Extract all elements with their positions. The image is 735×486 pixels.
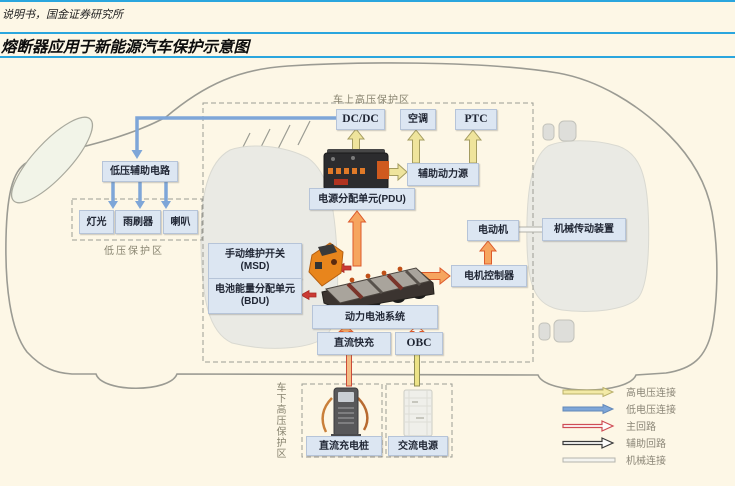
legend-label: 高电压连接 — [626, 384, 676, 399]
headrest-icon — [554, 320, 574, 342]
pdu-image — [324, 149, 389, 190]
top-rule — [0, 0, 735, 2]
label-hv-onboard-zone: 车上高压保护区 — [333, 91, 410, 106]
legend-row-low-voltage: 低电压连接 — [562, 400, 676, 417]
box-dc-fast: 直流快充 — [317, 332, 391, 355]
box-horn: 喇叭 — [163, 210, 198, 234]
box-dc-charger: 直流充电桩 — [306, 436, 382, 456]
legend-row-high-voltage: 高电压连接 — [562, 383, 676, 400]
title-rule-bottom — [0, 56, 735, 58]
headrest-icon — [539, 323, 550, 340]
legend-label: 低电压连接 — [626, 401, 676, 416]
msd-label-line1: 手动维护开关 — [225, 249, 285, 262]
legend-row-main-circuit: 主回路 — [562, 417, 676, 434]
box-ptc: PTC — [455, 109, 497, 130]
box-mechanical-drive: 机械传动装置 — [542, 218, 626, 241]
mechanical-link — [516, 227, 543, 232]
box-ac-source: 交流电源 — [388, 436, 448, 456]
box-lv-aux: 低压辅助电路 — [102, 161, 178, 182]
legend-row-mechanical: 机械连接 — [562, 451, 676, 468]
box-battery-system: 动力电池系统 — [312, 305, 438, 329]
source-note: 说明书，国金证券研究所 — [2, 6, 123, 22]
ac-source-image — [404, 390, 432, 436]
box-wiper: 雨刷器 — [115, 210, 161, 234]
legend-row-aux-circuit: 辅助回路 — [562, 434, 676, 451]
headrest-icon — [559, 121, 576, 141]
ac-charge-line — [415, 353, 420, 386]
dc-charge-line — [347, 353, 352, 386]
mechanical-link-icon — [562, 453, 616, 467]
headlight-shape — [1, 107, 104, 213]
msd-label-line2: (MSD) — [241, 261, 270, 274]
box-motor-controller: 电机控制器 — [451, 265, 527, 287]
aux-circuit-arrow-icon — [562, 436, 616, 450]
box-msd: 手动维护开关 (MSD) — [208, 243, 302, 279]
box-motor: 电动机 — [467, 220, 519, 241]
legend: 高电压连接 低电压连接 主回路 辅助回路 机械连接 — [562, 383, 676, 468]
legend-label: 机械连接 — [626, 452, 666, 467]
box-bdu: 电池能量分配单元 (BDU) — [208, 278, 302, 314]
bdu-label-line1: 电池能量分配单元 — [215, 284, 295, 297]
box-pdu: 电源分配单元(PDU) — [309, 188, 415, 210]
label-hv-under-zone: 车下高压保护区 — [274, 382, 285, 464]
box-air-conditioner: 空调 — [400, 109, 436, 130]
bdu-label-line2: (BDU) — [241, 296, 269, 309]
low-voltage-arrow-icon — [562, 402, 616, 416]
report-figure-page: 说明书，国金证券研究所 熔断器应用于新能源汽车保护示意图 — [0, 0, 735, 486]
main-circuit-arrow-icon — [562, 419, 616, 433]
legend-label: 辅助回路 — [626, 435, 666, 450]
box-dcdc: DC/DC — [336, 109, 385, 130]
label-lv-protect-zone: 低压保护区 — [104, 242, 164, 257]
box-light: 灯光 — [79, 210, 114, 234]
legend-label: 主回路 — [626, 418, 656, 433]
box-obc: OBC — [395, 332, 443, 355]
title-rule-top — [0, 32, 735, 34]
headrest-icon — [543, 124, 554, 140]
box-aux-power: 辅助动力源 — [407, 163, 479, 186]
figure-title: 熔断器应用于新能源汽车保护示意图 — [1, 35, 249, 57]
dc-charger-image — [323, 388, 368, 438]
high-voltage-arrow-icon — [562, 385, 616, 399]
